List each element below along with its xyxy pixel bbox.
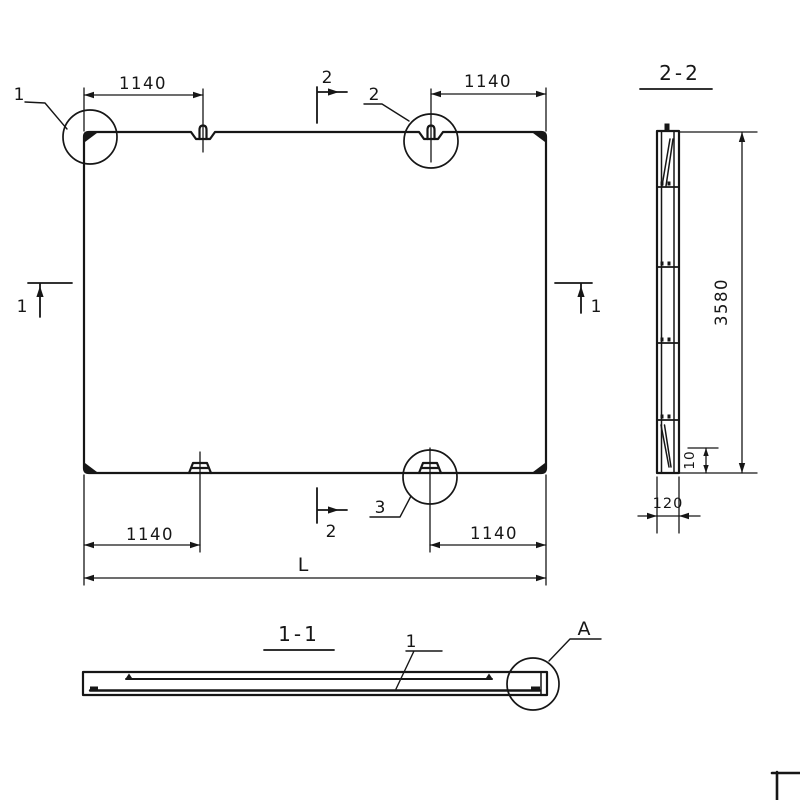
corner-chamfer-bottom-right	[533, 463, 545, 472]
dimension-value: L	[298, 554, 309, 576]
arrowhead	[679, 513, 689, 519]
cut-line	[555, 283, 592, 313]
rebar-upper-end-hook	[485, 674, 493, 680]
section-2-2-title: 2-2	[659, 61, 701, 85]
dimension-value: 1140	[126, 525, 174, 544]
plan-view: 1 2 3 1140 1140	[14, 68, 602, 585]
dimension-thickness-120: 120	[638, 477, 700, 533]
dimension-value: 1140	[470, 524, 518, 543]
rebar-lower-end-hook	[90, 687, 98, 692]
arrowhead	[703, 448, 708, 456]
engineering-drawing: 1 2 3 1140 1140	[0, 0, 800, 800]
dimension-overall-length: L	[84, 554, 546, 581]
cut-line	[28, 283, 72, 317]
section-marker-2-bottom: 2	[317, 488, 347, 542]
corner-chamfer-bottom-left	[85, 463, 97, 472]
section-view-1-1: 1-1 1 A	[83, 618, 601, 710]
rebar-upper-end-hook	[125, 674, 133, 680]
rebar-diagonal-top	[662, 139, 673, 186]
rebar-diagonal-bottom	[661, 425, 671, 467]
dimension-value: 1140	[119, 74, 167, 93]
section-marker-1-left: 1	[17, 283, 72, 317]
view-direction-arrow	[577, 286, 584, 297]
arrowhead	[739, 463, 745, 473]
arrowhead	[647, 513, 657, 519]
view-direction-arrow	[36, 286, 43, 297]
detail-a: A	[507, 618, 601, 710]
detail-a-label: A	[578, 618, 591, 640]
section-marker-label: 1	[17, 297, 28, 317]
dimension-edge-offset-10: 10	[682, 448, 718, 473]
cut-line	[317, 488, 347, 523]
rebar-lower-end-hook	[531, 687, 540, 692]
section-marker-label: 1	[591, 297, 602, 317]
arrowhead	[431, 91, 441, 97]
dimension-value: 120	[653, 496, 684, 512]
drawing-sheet: 1 2 3 1140 1140	[0, 0, 800, 800]
arrowhead	[190, 542, 200, 548]
dimension-value: 3580	[712, 278, 731, 326]
detail-circle-1-leader	[25, 102, 67, 129]
drawing-frame-corner	[772, 772, 800, 800]
detail-circle-2-label: 2	[369, 85, 380, 105]
detail-circle-2-leader	[364, 104, 409, 121]
extension-lines	[84, 88, 203, 152]
arrowhead	[536, 91, 546, 97]
view-direction-arrow	[328, 88, 339, 95]
dimension-value: 1140	[464, 72, 512, 91]
extension-lines	[430, 448, 546, 585]
section-1-1-title: 1-1	[278, 622, 320, 646]
rebar-callout-leader	[396, 651, 442, 689]
detail-circle-3-label: 3	[375, 498, 386, 518]
frame-corner-lines	[772, 772, 800, 800]
corner-chamfer-top-right	[533, 133, 545, 142]
detail-circle-a	[507, 658, 559, 710]
detail-circle-1-label: 1	[14, 85, 25, 105]
extension-lines	[431, 88, 546, 162]
rebar-callout: 1	[396, 632, 442, 689]
corner-chamfer-top-left	[85, 133, 97, 142]
arrowhead	[84, 575, 94, 581]
arrowhead	[430, 542, 440, 548]
arrowhead	[84, 92, 94, 98]
dimension-top-right: 1140	[431, 72, 546, 162]
detail-a-leader	[549, 639, 601, 661]
arrowhead	[193, 92, 203, 98]
section-marker-1-right: 1	[555, 283, 601, 317]
view-direction-arrow	[328, 506, 339, 513]
top-loop-tip-icon	[665, 124, 670, 132]
joint-lines	[657, 187, 679, 420]
section-marker-2-top: 2	[317, 68, 347, 123]
arrowhead	[84, 542, 94, 548]
section-marker-label: 2	[322, 68, 333, 88]
section-marker-label: 2	[326, 522, 337, 542]
arrowhead	[739, 132, 745, 142]
arrowhead	[536, 575, 546, 581]
rebar-callout-label: 1	[406, 632, 417, 652]
arrowhead	[536, 542, 546, 548]
dimension-bottom-right: 1140	[430, 448, 546, 585]
arrowhead	[703, 465, 708, 473]
dimension-value: 10	[682, 450, 698, 469]
panel-outline	[84, 132, 546, 473]
section-view-2-2: 2-2 3580 10	[638, 61, 757, 533]
dimension-height-3580: 3580	[679, 132, 757, 473]
